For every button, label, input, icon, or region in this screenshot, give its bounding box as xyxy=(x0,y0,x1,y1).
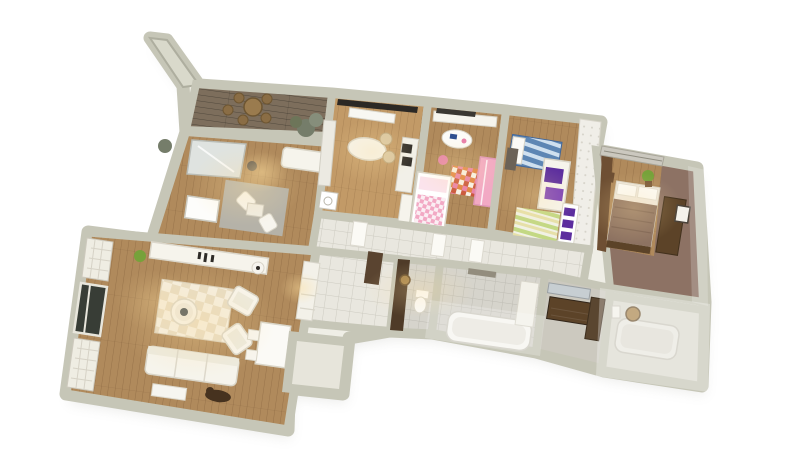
living-plant xyxy=(134,250,146,262)
floor-plan-render xyxy=(0,0,800,450)
lamp-finial-icon xyxy=(256,266,260,270)
entry-alcove-floor xyxy=(287,336,349,394)
living-window-glass xyxy=(74,283,107,336)
floor-plan-canvas xyxy=(0,0,800,450)
corridor-door-1 xyxy=(350,221,367,247)
corridor-door-3 xyxy=(469,239,485,263)
kitchen-washing-machine xyxy=(319,191,338,210)
corridor-door-2 xyxy=(431,233,447,257)
balcony-table xyxy=(244,98,262,116)
